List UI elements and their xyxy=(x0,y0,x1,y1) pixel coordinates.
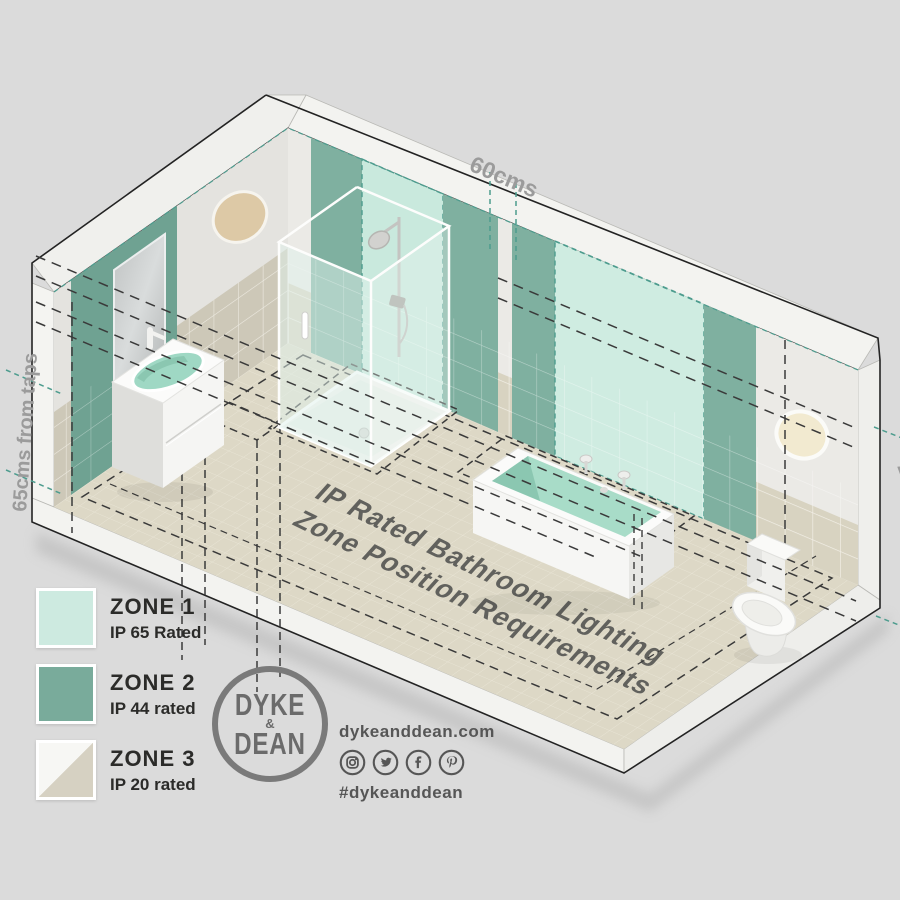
legend-item-zone3: ZONE 3 IP 20 rated xyxy=(36,740,201,800)
legend-item-zone2: ZONE 2 IP 44 rated xyxy=(36,664,201,724)
shower-door-handle xyxy=(302,312,308,339)
dyke-and-dean-logo: DYKE & DEAN xyxy=(212,666,328,782)
zone3-swatch xyxy=(36,740,96,800)
twitter-icon xyxy=(372,749,399,776)
zone3-label: ZONE 3 xyxy=(110,746,196,772)
website-text: dykeanddean.com xyxy=(339,722,495,742)
zone2-rating: IP 44 rated xyxy=(110,699,196,719)
social-block: dykeanddean.com #dykeanddean xyxy=(339,722,495,803)
legend-item-zone1: ZONE 1 IP 65 Rated xyxy=(36,588,201,648)
infographic-canvas: IP Rated Bathroom Lighting Zone Position… xyxy=(0,0,900,900)
hashtag-text: #dykeanddean xyxy=(339,783,495,803)
logo-word-bottom: DEAN xyxy=(234,730,306,757)
dimension-right-label: 225cms xyxy=(892,463,900,546)
logo-word-top: DYKE xyxy=(235,691,305,718)
pinterest-icon xyxy=(438,749,465,776)
zone2-label: ZONE 2 xyxy=(110,670,196,696)
zone2-swatch xyxy=(36,664,96,724)
zone3-rating: IP 20 rated xyxy=(110,775,196,795)
zone-legend: ZONE 1 IP 65 Rated ZONE 2 IP 44 rated ZO… xyxy=(36,588,201,816)
right-wall-edge-band xyxy=(858,360,880,600)
social-icons-row xyxy=(339,749,495,776)
zone1-label: ZONE 1 xyxy=(110,594,201,620)
instagram-icon xyxy=(339,749,366,776)
zone1-rating: IP 65 Rated xyxy=(110,623,201,643)
facebook-icon xyxy=(405,749,432,776)
zone1-swatch xyxy=(36,588,96,648)
